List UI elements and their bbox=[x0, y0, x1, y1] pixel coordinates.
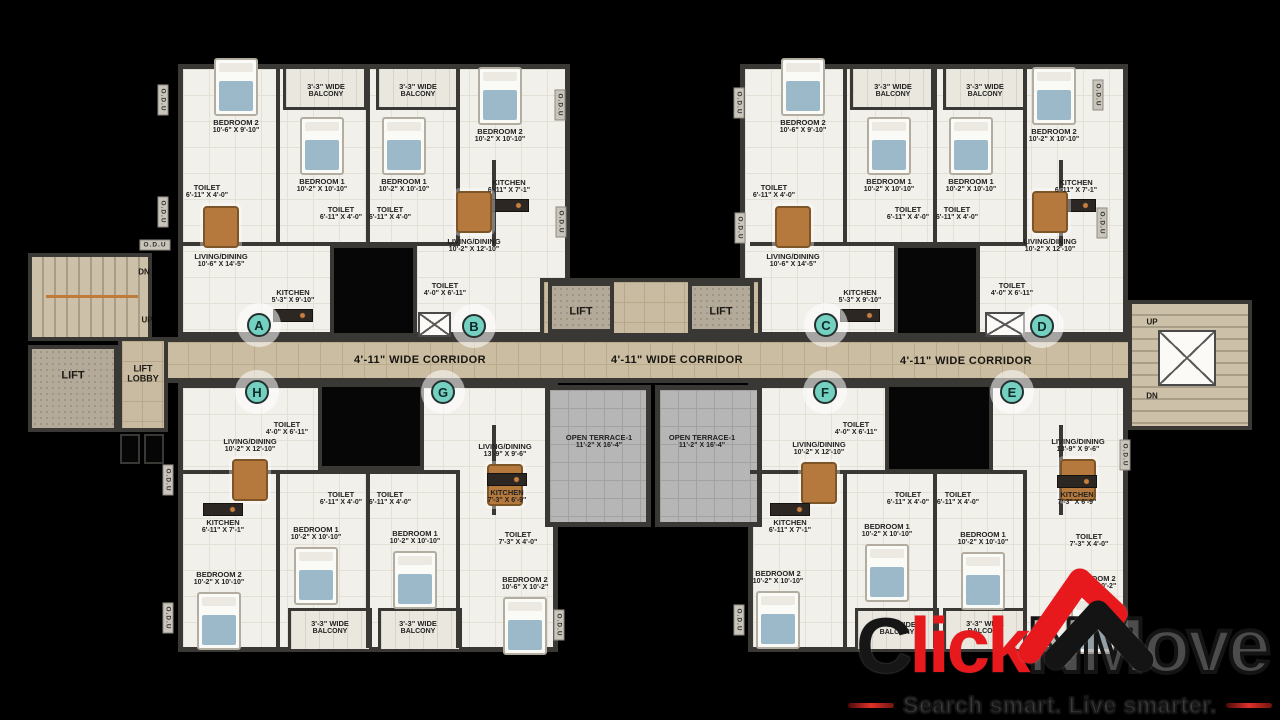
room-name: TOILET bbox=[186, 183, 228, 192]
open-terrace-2 bbox=[655, 385, 762, 527]
room-dimensions: 6'-11" X 7'-1" bbox=[202, 527, 244, 536]
odu-label: O.D.U bbox=[1120, 439, 1131, 470]
room-dimensions: 7'-3" X 6'-9" bbox=[1058, 499, 1097, 508]
room-dimensions: 4'-0" X 6'-11" bbox=[835, 429, 877, 438]
room-name: 3'-3" WIDE bbox=[399, 619, 437, 628]
room-label: BEDROOM 210'-2" X 10'-10" bbox=[194, 570, 244, 588]
room-label: TOILET7'-3" X 4'-0" bbox=[1070, 532, 1109, 550]
room-name: KITCHEN bbox=[1055, 178, 1097, 187]
wall bbox=[750, 470, 1027, 474]
room-label: LIVING/DINING13'-9" X 9'-6" bbox=[478, 442, 531, 460]
unit-marker-E: E bbox=[1000, 380, 1024, 404]
odu-label: O.D.U bbox=[158, 196, 169, 227]
room-label: KITCHEN5'-3" X 9'-10" bbox=[839, 288, 882, 306]
stair-rail bbox=[46, 295, 138, 298]
room-dimensions: 4'-0" X 6'-11" bbox=[266, 429, 308, 438]
room-label: KITCHEN6'-11" X 7'-1" bbox=[488, 178, 530, 196]
odu-label: O.D.U bbox=[1097, 207, 1108, 238]
tagline-dash-left bbox=[848, 703, 894, 708]
room-label: TOILET6'-11" X 4'-0" bbox=[369, 490, 411, 508]
core-label: UP bbox=[1146, 317, 1157, 326]
core-label: DN bbox=[138, 267, 150, 276]
room-label: BEDROOM 210'-6" X 9'-10" bbox=[213, 118, 260, 136]
odu-label: O.D.U bbox=[139, 240, 170, 251]
odu-label: O.D.U bbox=[163, 464, 174, 495]
room-label: 3'-3" WIDEBALCONY bbox=[966, 82, 1004, 100]
room-name: TOILET bbox=[937, 490, 979, 499]
room-label: BEDROOM 110'-2" X 10'-10" bbox=[379, 177, 429, 195]
room-label: TOILET7'-3" X 4'-0" bbox=[499, 530, 538, 548]
bed-furniture bbox=[478, 67, 522, 125]
core-label: DN bbox=[1146, 391, 1158, 400]
room-dimensions: 6'-11" X 4'-0" bbox=[937, 499, 979, 508]
room-name: BEDROOM 2 bbox=[194, 570, 244, 579]
core-label: LIFT bbox=[569, 306, 592, 319]
room-dimensions: 5'-3" X 9'-10" bbox=[272, 297, 315, 306]
room-dimensions: 6'-11" X 4'-0" bbox=[320, 499, 362, 508]
room-dimensions: 6'-11" X 4'-0" bbox=[320, 214, 362, 223]
bed-furniture bbox=[867, 117, 911, 175]
dining-table bbox=[203, 206, 239, 248]
unit-letter: E bbox=[1008, 385, 1017, 400]
room-name: TOILET bbox=[991, 281, 1033, 290]
room-name: TOILET bbox=[887, 205, 929, 214]
room-label: BEDROOM 210'-6" X 9'-10" bbox=[780, 118, 827, 136]
room-label: TOILET4'-0" X 6'-11" bbox=[266, 420, 308, 438]
odu-label: O.D.U bbox=[158, 84, 169, 115]
room-label: KITCHEN6'-11" X 7'-1" bbox=[202, 518, 244, 536]
room-name: KITCHEN bbox=[272, 288, 315, 297]
room-dimensions: 10'-2" X 10'-10" bbox=[864, 186, 914, 195]
room-label: BEDROOM 110'-2" X 10'-10" bbox=[297, 177, 347, 195]
room-label: BEDROOM 210'-6" X 10'-2" bbox=[502, 575, 549, 593]
room-name: LIVING/DINING bbox=[478, 442, 531, 451]
kitchen-counter bbox=[489, 199, 529, 212]
room-name: BEDROOM 2 bbox=[1029, 127, 1079, 136]
room-dimensions: 10'-2" X 10'-10" bbox=[958, 539, 1008, 548]
room-name: TOILET bbox=[1070, 532, 1109, 541]
room-name: TOILET bbox=[266, 420, 308, 429]
room-dimensions: BALCONY bbox=[874, 91, 912, 100]
room-name: KITCHEN bbox=[1058, 490, 1097, 499]
shaft-void bbox=[318, 383, 424, 470]
house-roof-icon bbox=[1018, 554, 1168, 664]
room-name: TOILET bbox=[320, 205, 362, 214]
room-name: LIVING/DINING bbox=[194, 252, 247, 261]
room-name: TOILET bbox=[753, 183, 795, 192]
room-label: BEDROOM 110'-2" X 10'-10" bbox=[958, 530, 1008, 548]
wall bbox=[843, 68, 847, 246]
room-name: 3'-3" WIDE bbox=[399, 82, 437, 91]
dining-table bbox=[1032, 191, 1068, 233]
odu-label: O.D.U bbox=[555, 89, 566, 120]
odu-label: O.D.U bbox=[554, 609, 565, 640]
shaft-void bbox=[885, 383, 993, 473]
room-label: KITCHEN7'-3" X 6'-9" bbox=[488, 488, 527, 506]
room-name: LIVING/DINING bbox=[223, 437, 276, 446]
room-name: KITCHEN bbox=[202, 518, 244, 527]
room-label: 3'-3" WIDEBALCONY bbox=[874, 82, 912, 100]
room-dimensions: 13'-9" X 9'-6" bbox=[1051, 446, 1104, 455]
tagline-dash-right bbox=[1226, 703, 1272, 708]
room-label: LIVING/DINING10'-6" X 14'-5" bbox=[194, 252, 247, 270]
shaft-void bbox=[330, 244, 417, 337]
room-name: BEDROOM 1 bbox=[958, 530, 1008, 539]
room-dimensions: 10'-2" X 12'-10" bbox=[792, 449, 845, 458]
unit-letter: A bbox=[254, 318, 263, 333]
room-dimensions: 10'-2" X 10'-10" bbox=[946, 186, 996, 195]
room-label: BEDROOM 110'-2" X 10'-10" bbox=[390, 529, 440, 547]
room-name: LIVING/DINING bbox=[766, 252, 819, 261]
room-label: LIVING/DINING10'-2" X 12'-10" bbox=[223, 437, 276, 455]
room-name: LIVING/DINING bbox=[1023, 237, 1076, 246]
room-dimensions: 10'-6" X 10'-2" bbox=[502, 584, 549, 593]
duct-box bbox=[985, 312, 1025, 337]
unit-marker-G: G bbox=[431, 380, 455, 404]
room-dimensions: 10'-2" X 12'-10" bbox=[1023, 246, 1076, 255]
room-dimensions: 10'-6" X 14'-5" bbox=[194, 261, 247, 270]
unit-marker-D: D bbox=[1030, 314, 1054, 338]
room-dimensions: BALCONY bbox=[307, 91, 345, 100]
room-name: BEDROOM 2 bbox=[213, 118, 260, 127]
room-label: TOILET6'-11" X 4'-0" bbox=[753, 183, 795, 201]
room-name: OPEN TERRACE-1 bbox=[566, 433, 632, 442]
room-dimensions: BALCONY bbox=[966, 91, 1004, 100]
room-dimensions: 6'-11" X 7'-1" bbox=[1055, 187, 1097, 196]
room-label: TOILET4'-0" X 6'-11" bbox=[424, 281, 466, 299]
room-name: TOILET bbox=[424, 281, 466, 290]
room-name: TOILET bbox=[369, 490, 411, 499]
kitchen-counter bbox=[770, 503, 810, 516]
room-dimensions: 10'-2" X 10'-10" bbox=[379, 186, 429, 195]
unit-marker-C: C bbox=[814, 313, 838, 337]
room-dimensions: 6'-11" X 7'-1" bbox=[769, 527, 811, 536]
bed-furniture bbox=[300, 117, 344, 175]
room-dimensions: 10'-6" X 9'-10" bbox=[780, 127, 827, 136]
wall bbox=[456, 473, 460, 648]
corridor-label: 4'-11" WIDE CORRIDOR bbox=[900, 355, 1032, 367]
room-name: BEDROOM 2 bbox=[475, 127, 525, 136]
room-dimensions: 10'-2" X 10'-10" bbox=[194, 579, 244, 588]
logo-tagline: Search smart. Live smarter. bbox=[903, 692, 1217, 719]
shaft-void bbox=[894, 244, 980, 337]
room-dimensions: 10'-2" X 10'-10" bbox=[753, 578, 803, 587]
room-label: BEDROOM 110'-2" X 10'-10" bbox=[291, 525, 341, 543]
unit-marker-H: H bbox=[245, 380, 269, 404]
room-name: TOILET bbox=[320, 490, 362, 499]
room-name: LIVING/DINING bbox=[792, 440, 845, 449]
room-label: KITCHEN7'-3" X 6'-9" bbox=[1058, 490, 1097, 508]
bed-furniture bbox=[197, 592, 241, 650]
core-label: UP bbox=[141, 315, 152, 324]
room-name: BEDROOM 2 bbox=[502, 575, 549, 584]
room-dimensions: 10'-2" X 10'-10" bbox=[297, 186, 347, 195]
room-name: BEDROOM 1 bbox=[297, 177, 347, 186]
room-dimensions: 6'-11" X 4'-0" bbox=[887, 499, 929, 508]
open-terrace-1 bbox=[545, 385, 651, 527]
unit-letter: D bbox=[1037, 319, 1046, 334]
room-name: KITCHEN bbox=[839, 288, 882, 297]
room-label: BEDROOM 110'-2" X 10'-10" bbox=[946, 177, 996, 195]
room-dimensions: BALCONY bbox=[399, 628, 437, 637]
room-dimensions: 5'-3" X 9'-10" bbox=[839, 297, 882, 306]
room-dimensions: 11'-2" X 16'-4" bbox=[566, 442, 632, 451]
room-dimensions: 6'-11" X 7'-1" bbox=[488, 187, 530, 196]
room-name: KITCHEN bbox=[488, 178, 530, 187]
room-dimensions: 6'-11" X 4'-0" bbox=[887, 214, 929, 223]
room-name: BEDROOM 1 bbox=[946, 177, 996, 186]
bed-furniture bbox=[393, 551, 437, 609]
room-name: BEDROOM 2 bbox=[780, 118, 827, 127]
dining-table bbox=[775, 206, 811, 248]
unit-marker-F: F bbox=[813, 380, 837, 404]
unit-letter: G bbox=[438, 385, 448, 400]
room-dimensions: 6'-11" X 4'-0" bbox=[369, 499, 411, 508]
core-label: LIFT bbox=[61, 370, 84, 383]
bed-furniture bbox=[294, 547, 338, 605]
room-label: TOILET6'-11" X 4'-0" bbox=[186, 183, 228, 201]
room-label: OPEN TERRACE-111'-2" X 16'-4" bbox=[566, 433, 632, 451]
room-dimensions: BALCONY bbox=[311, 628, 349, 637]
room-dimensions: 7'-3" X 4'-0" bbox=[499, 539, 538, 548]
room-label: LIVING/DINING10'-2" X 12'-10" bbox=[792, 440, 845, 458]
bed-furniture bbox=[756, 591, 800, 649]
unit-letter: H bbox=[252, 385, 261, 400]
room-label: TOILET6'-11" X 4'-0" bbox=[369, 205, 411, 223]
room-dimensions: 10'-2" X 10'-10" bbox=[1029, 136, 1079, 145]
room-name: 3'-3" WIDE bbox=[307, 82, 345, 91]
room-name: BEDROOM 1 bbox=[291, 525, 341, 534]
room-label: 3'-3" WIDEBALCONY bbox=[307, 82, 345, 100]
room-dimensions: BALCONY bbox=[399, 91, 437, 100]
bed-furniture bbox=[781, 58, 825, 116]
room-dimensions: 7'-3" X 4'-0" bbox=[1070, 541, 1109, 550]
room-label: TOILET6'-11" X 4'-0" bbox=[887, 205, 929, 223]
bed-furniture bbox=[382, 117, 426, 175]
odu-label: O.D.U bbox=[735, 212, 746, 243]
room-dimensions: 10'-2" X 10'-10" bbox=[475, 136, 525, 145]
room-label: TOILET4'-0" X 6'-11" bbox=[991, 281, 1033, 299]
room-label: BEDROOM 210'-2" X 10'-10" bbox=[753, 569, 803, 587]
room-dimensions: 10'-2" X 10'-10" bbox=[862, 531, 912, 540]
room-dimensions: 4'-0" X 6'-11" bbox=[424, 290, 466, 299]
logo-text-lick: lick bbox=[909, 601, 1027, 689]
room-name: BEDROOM 1 bbox=[379, 177, 429, 186]
core-label: LIFT LOBBY bbox=[121, 364, 165, 385]
room-name: LIVING/DINING bbox=[1051, 437, 1104, 446]
unit-marker-A: A bbox=[247, 313, 271, 337]
room-label: 3'-3" WIDEBALCONY bbox=[311, 619, 349, 637]
room-name: KITCHEN bbox=[488, 488, 527, 497]
room-label: OPEN TERRACE-111'-2" X 16'-4" bbox=[669, 433, 735, 451]
room-dimensions: 13'-9" X 9'-6" bbox=[478, 451, 531, 460]
unit-letter: F bbox=[821, 385, 829, 400]
odu-label: O.D.U bbox=[1093, 79, 1104, 110]
room-name: 3'-3" WIDE bbox=[311, 619, 349, 628]
room-name: BEDROOM 2 bbox=[753, 569, 803, 578]
logo-tagline-row: Search smart. Live smarter. bbox=[848, 692, 1278, 719]
room-dimensions: 10'-2" X 12'-10" bbox=[223, 446, 276, 455]
room-name: BEDROOM 1 bbox=[862, 522, 912, 531]
lift-shaft-right bbox=[1158, 330, 1216, 386]
room-name: 3'-3" WIDE bbox=[966, 82, 1004, 91]
room-name: TOILET bbox=[369, 205, 411, 214]
dining-table bbox=[456, 191, 492, 233]
room-dimensions: 7'-3" X 6'-9" bbox=[488, 497, 527, 506]
floor-plan-image: BEDROOM 210'-6" X 9'-10"3'-3" WIDEBALCON… bbox=[0, 0, 1280, 720]
room-label: BEDROOM 110'-2" X 10'-10" bbox=[862, 522, 912, 540]
room-dimensions: 6'-11" X 4'-0" bbox=[186, 192, 228, 201]
unit-letter: B bbox=[469, 319, 478, 334]
room-name: TOILET bbox=[835, 420, 877, 429]
room-dimensions: 10'-6" X 14'-5" bbox=[766, 261, 819, 270]
room-dimensions: 10'-2" X 10'-10" bbox=[291, 534, 341, 543]
wall bbox=[843, 473, 847, 648]
room-dimensions: 6'-11" X 4'-0" bbox=[753, 192, 795, 201]
room-label: BEDROOM 110'-2" X 10'-10" bbox=[864, 177, 914, 195]
room-label: 3'-3" WIDEBALCONY bbox=[399, 619, 437, 637]
room-label: LIVING/DINING10'-6" X 14'-5" bbox=[766, 252, 819, 270]
room-name: KITCHEN bbox=[769, 518, 811, 527]
odu-label: O.D.U bbox=[163, 602, 174, 633]
corridor-label: 4'-11" WIDE CORRIDOR bbox=[611, 354, 743, 366]
odu-label: O.D.U bbox=[556, 206, 567, 237]
bed-furniture bbox=[214, 58, 258, 116]
unit-letter: C bbox=[821, 318, 830, 333]
room-label: TOILET4'-0" X 6'-11" bbox=[835, 420, 877, 438]
kitchen-counter bbox=[487, 473, 527, 486]
room-label: KITCHEN5'-3" X 9'-10" bbox=[272, 288, 315, 306]
wall bbox=[276, 473, 280, 648]
wall bbox=[1023, 68, 1027, 246]
kitchen-counter bbox=[203, 503, 243, 516]
lift-shaft-left bbox=[28, 345, 118, 432]
room-name: OPEN TERRACE-1 bbox=[669, 433, 735, 442]
room-dimensions: 6'-11" X 4'-0" bbox=[369, 214, 411, 223]
room-dimensions: 10'-2" X 12'-10" bbox=[447, 246, 500, 255]
lift-lobby bbox=[118, 337, 168, 432]
room-label: TOILET6'-11" X 4'-0" bbox=[887, 490, 929, 508]
room-dimensions: 10'-2" X 10'-10" bbox=[390, 538, 440, 547]
kitchen-counter bbox=[1057, 475, 1097, 488]
room-label: 3'-3" WIDEBALCONY bbox=[399, 82, 437, 100]
odu-label: O.D.U bbox=[734, 87, 745, 118]
room-label: KITCHEN6'-11" X 7'-1" bbox=[1055, 178, 1097, 196]
room-label: LIVING/DINING10'-2" X 12'-10" bbox=[1023, 237, 1076, 255]
room-dimensions: 10'-6" X 9'-10" bbox=[213, 127, 260, 136]
unit-marker-B: B bbox=[462, 314, 486, 338]
room-label: KITCHEN6'-11" X 7'-1" bbox=[769, 518, 811, 536]
dining-table bbox=[801, 462, 837, 504]
room-label: TOILET6'-11" X 4'-0" bbox=[936, 205, 978, 223]
room-dimensions: 11'-2" X 16'-4" bbox=[669, 442, 735, 451]
room-label: TOILET6'-11" X 4'-0" bbox=[320, 205, 362, 223]
odu-label: O.D.U bbox=[734, 604, 745, 635]
room-name: TOILET bbox=[499, 530, 538, 539]
core-label: LIFT bbox=[709, 306, 732, 319]
corridor-label: 4'-11" WIDE CORRIDOR bbox=[354, 354, 486, 366]
room-label: BEDROOM 210'-2" X 10'-10" bbox=[475, 127, 525, 145]
room-dimensions: 4'-0" X 6'-11" bbox=[991, 290, 1033, 299]
room-label: LIVING/DINING13'-9" X 9'-6" bbox=[1051, 437, 1104, 455]
room-label: BEDROOM 210'-2" X 10'-10" bbox=[1029, 127, 1079, 145]
room-name: TOILET bbox=[936, 205, 978, 214]
duct bbox=[144, 434, 164, 464]
room-name: BEDROOM 1 bbox=[864, 177, 914, 186]
bed-furniture bbox=[949, 117, 993, 175]
bed-furniture bbox=[1032, 67, 1076, 125]
room-name: LIVING/DINING bbox=[447, 237, 500, 246]
duct bbox=[120, 434, 140, 464]
room-label: TOILET6'-11" X 4'-0" bbox=[937, 490, 979, 508]
room-name: TOILET bbox=[887, 490, 929, 499]
dining-table bbox=[232, 459, 268, 501]
clicknmove-logo: ClickNMove Search smart. Live smarter. bbox=[848, 550, 1278, 720]
room-name: 3'-3" WIDE bbox=[874, 82, 912, 91]
bed-furniture bbox=[503, 597, 547, 655]
room-label: LIVING/DINING10'-2" X 12'-10" bbox=[447, 237, 500, 255]
room-name: BEDROOM 1 bbox=[390, 529, 440, 538]
room-dimensions: 6'-11" X 4'-0" bbox=[936, 214, 978, 223]
logo-text-c: C bbox=[856, 601, 909, 689]
duct-box bbox=[418, 312, 451, 337]
wall bbox=[183, 470, 460, 474]
wall bbox=[276, 68, 280, 246]
room-label: TOILET6'-11" X 4'-0" bbox=[320, 490, 362, 508]
